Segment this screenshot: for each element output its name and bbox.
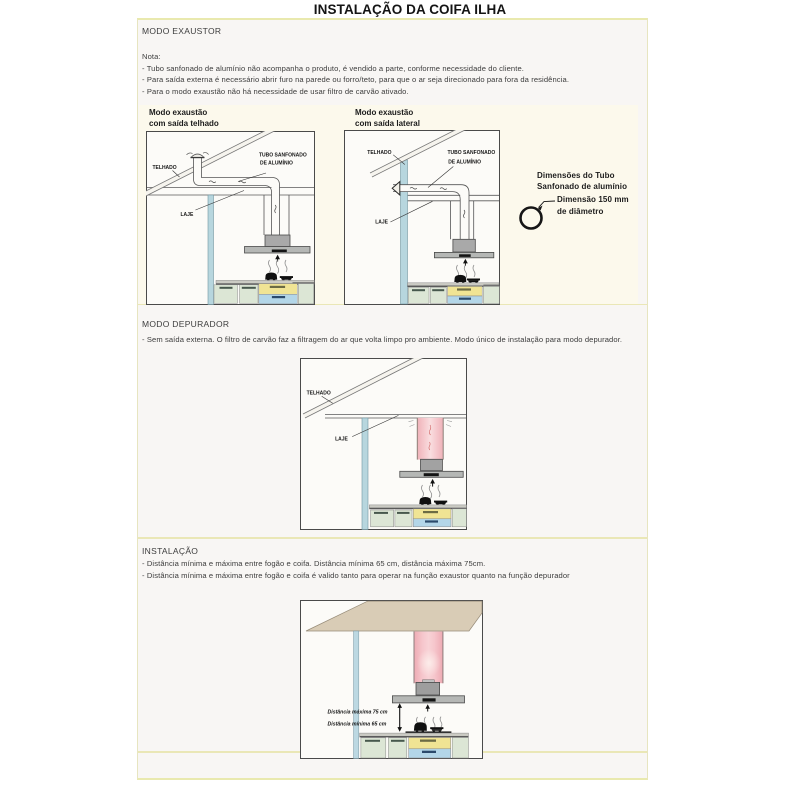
svg-text:TELHADO: TELHADO xyxy=(153,165,177,171)
svg-text:TELHADO: TELHADO xyxy=(307,390,331,396)
svg-text:DE ALUMÍNIO: DE ALUMÍNIO xyxy=(260,159,293,167)
svg-text:DE ALUMÍNIO: DE ALUMÍNIO xyxy=(448,158,481,166)
svg-text:TELHADO: TELHADO xyxy=(367,150,391,156)
svg-text:TUBO SANFONADO: TUBO SANFONADO xyxy=(448,150,496,156)
svg-text:LAJE: LAJE xyxy=(181,212,194,218)
svg-text:TUBO SANFONADO: TUBO SANFONADO xyxy=(259,153,307,159)
svg-text:Distância máxima 75 cm: Distância máxima 75 cm xyxy=(328,710,388,716)
svg-text:LAJE: LAJE xyxy=(335,437,348,443)
svg-text:Distância mínima 65 cm: Distância mínima 65 cm xyxy=(328,722,387,728)
svg-text:LAJE: LAJE xyxy=(375,220,388,226)
